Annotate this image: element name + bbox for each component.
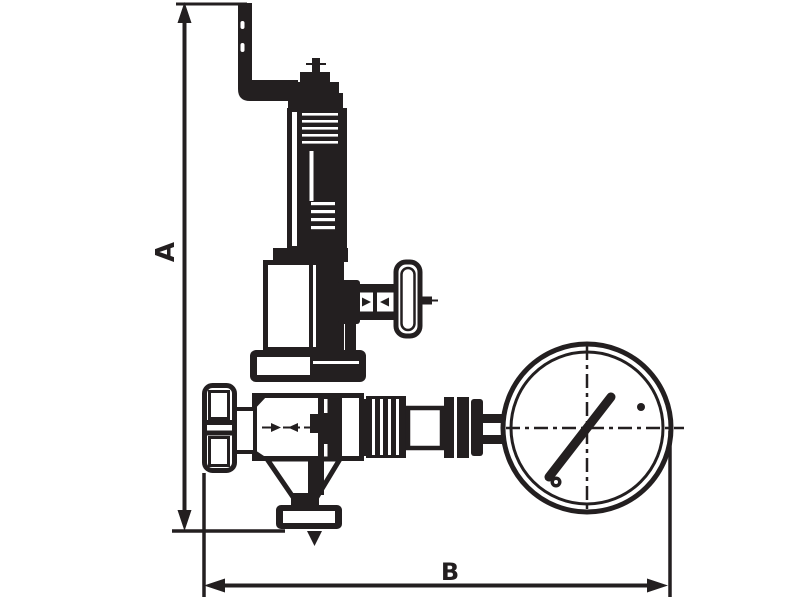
lever-highlight [241, 21, 245, 29]
body-inner-sliver [324, 444, 328, 457]
stem-centerline-arrow [380, 298, 389, 307]
outlet-ring-stack [444, 397, 483, 458]
valve-body [252, 396, 362, 459]
handwheel-hub-band [207, 420, 232, 425]
valve-bracket [345, 318, 356, 352]
outlet-cylinder [408, 408, 442, 448]
body-inner-sliver [324, 399, 328, 413]
bonnet-flange [250, 350, 366, 382]
dimension-a-label: A [151, 242, 181, 262]
shutoff-valve [338, 262, 438, 352]
drain-neck [291, 493, 319, 507]
skirt-inner-column [308, 461, 324, 495]
handwheel-window-top [210, 392, 229, 419]
chamber-inner-sliver [313, 265, 316, 347]
spindle-pin [312, 58, 320, 74]
dimension-b-label: B [441, 558, 459, 586]
spindle-cap [300, 72, 330, 83]
t-handle-bar [396, 262, 420, 336]
handwheel-hub-band [207, 431, 232, 436]
housing-left-channel [292, 112, 297, 246]
dimension-b-arrow-right [647, 579, 668, 593]
technical-drawing-page: A B [0, 0, 800, 598]
upper-chamber [266, 262, 343, 350]
pressure-gauge [503, 344, 684, 512]
stem-centerline-arrow [362, 298, 371, 307]
dimension-a-arrow-down [178, 510, 192, 531]
outlet-assembly [358, 396, 504, 458]
lever [238, 3, 298, 101]
flange-window [257, 357, 310, 375]
gauge-dial-dot [637, 403, 645, 411]
body-skirt [267, 459, 340, 507]
housing-bottom-collar [273, 248, 348, 262]
adjusting-spindle [288, 58, 343, 109]
handwheel [205, 386, 256, 471]
valve-stem-joint [373, 286, 377, 316]
skirt-cone [267, 459, 340, 497]
handwheel-window-bottom [210, 438, 229, 466]
dimension-b-arrow-left [204, 579, 225, 593]
bottom-flange [276, 505, 342, 546]
lever-highlight [241, 43, 245, 52]
drain-tip [307, 531, 322, 546]
valve-technical-drawing: A B [0, 0, 800, 598]
spindle-hex-nut [288, 93, 343, 109]
body-center-block [310, 414, 322, 433]
flange-groove [313, 361, 359, 364]
bottom-flange-window [283, 511, 335, 523]
spindle-collar [292, 82, 339, 94]
gauge-needle-tail-dot-center [554, 480, 558, 484]
spring-housing [273, 108, 348, 262]
housing-sliver [310, 151, 314, 201]
t-handle-pin [420, 297, 432, 305]
lever-arm [238, 3, 298, 101]
